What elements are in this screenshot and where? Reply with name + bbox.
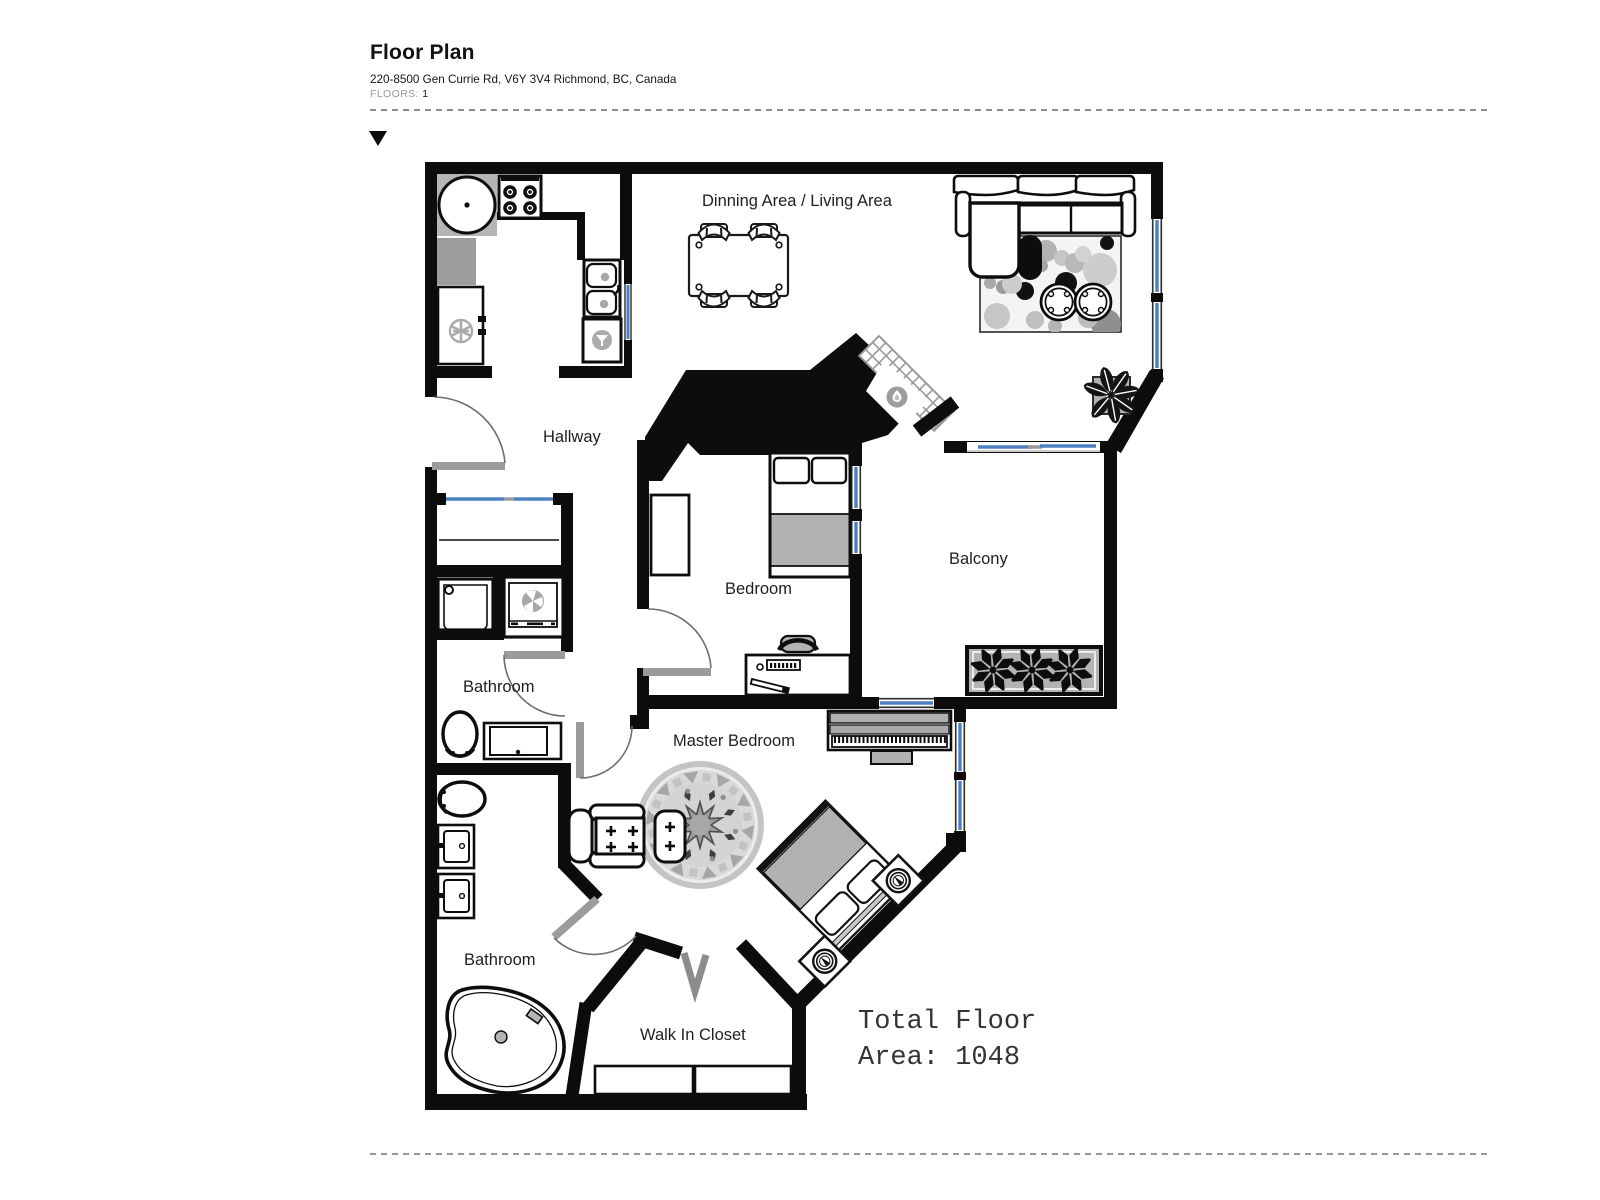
svg-text:Balcony: Balcony <box>949 550 1008 568</box>
svg-text:Master Bedroom: Master Bedroom <box>673 732 795 750</box>
svg-text:Walk In Closet: Walk In Closet <box>640 1026 746 1044</box>
svg-text:Bathroom: Bathroom <box>464 951 536 969</box>
svg-text:Dinning Area / Living Area: Dinning Area / Living Area <box>702 192 893 210</box>
svg-text:Bedroom: Bedroom <box>725 580 792 598</box>
svg-text:Hallway: Hallway <box>543 428 602 446</box>
svg-text:Bathroom: Bathroom <box>463 678 535 696</box>
